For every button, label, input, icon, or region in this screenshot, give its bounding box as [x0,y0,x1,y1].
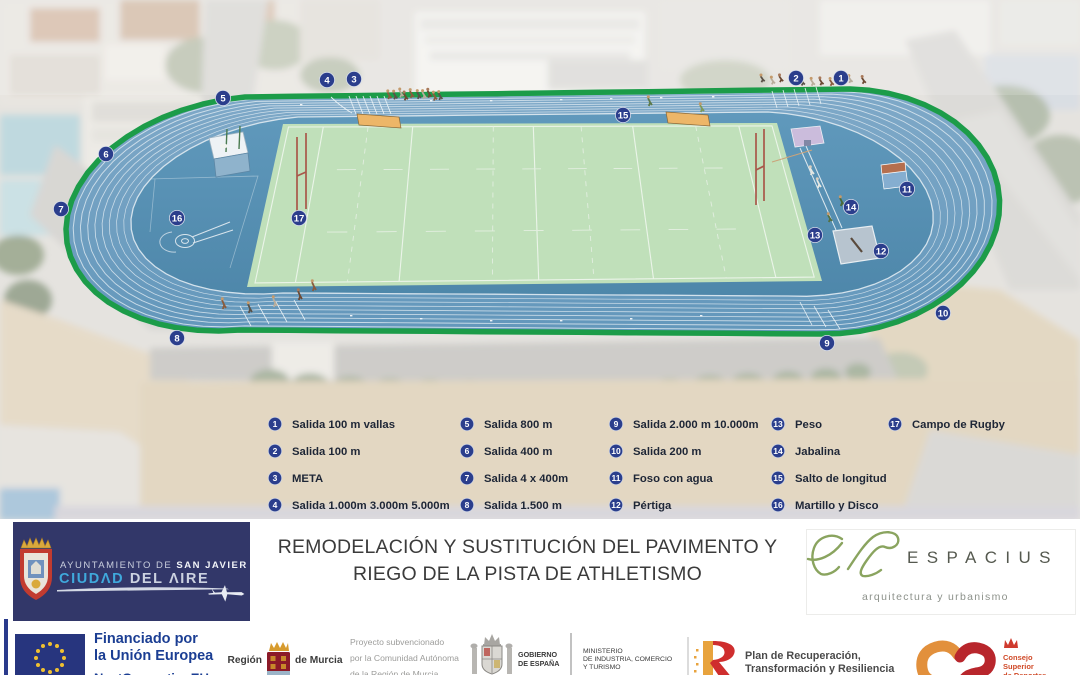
svg-text:Salida 4 x 400m: Salida 4 x 400m [484,473,568,485]
svg-text:Salida 200 m: Salida 200 m [633,446,701,458]
svg-text:NextGenerationEU: NextGenerationEU [94,671,209,675]
svg-text:la Unión Europea: la Unión Europea [94,648,214,664]
svg-text:1: 1 [838,73,844,84]
svg-text:MINISTERIO: MINISTERIO [583,648,623,655]
svg-text:8: 8 [465,500,470,510]
svg-text:Salida 1.500 m: Salida 1.500 m [484,500,562,512]
svg-text:1: 1 [273,419,278,429]
svg-text:de la Región de Murcia: de la Región de Murcia [350,669,439,675]
svg-text:Campo de Rugby: Campo de Rugby [912,419,1006,431]
svg-text:Salto de longitud: Salto de longitud [795,473,887,485]
svg-text:11: 11 [902,184,913,195]
svg-text:11: 11 [612,473,621,483]
svg-text:Y TURISMO: Y TURISMO [583,664,621,671]
svg-text:Financiado por: Financiado por [94,631,198,647]
svg-text:10: 10 [611,446,621,456]
svg-text:Salida 400 m: Salida 400 m [484,446,552,458]
svg-text:7: 7 [58,204,63,215]
svg-text:4: 4 [324,75,330,86]
svg-text:por la Comunidad Autónoma: por la Comunidad Autónoma [350,653,459,663]
svg-text:2: 2 [793,73,798,84]
svg-text:14: 14 [846,202,857,213]
svg-text:10: 10 [938,308,949,319]
svg-text:DE ESPAÑA: DE ESPAÑA [518,659,559,668]
svg-text:Pértiga: Pértiga [633,500,672,512]
svg-text:Superior: Superior [1003,662,1034,671]
svg-text:Salida 2.000 m 10.000m: Salida 2.000 m 10.000m [633,419,759,431]
svg-text:Foso con agua: Foso con agua [633,473,713,485]
svg-text:Jabalina: Jabalina [795,446,841,458]
svg-text:17: 17 [294,213,305,224]
svg-text:12: 12 [611,500,621,510]
svg-text:Región: Región [227,655,262,666]
svg-text:5: 5 [465,419,470,429]
svg-text:9: 9 [824,338,829,349]
svg-text:5: 5 [220,93,226,104]
svg-text:META: META [292,473,323,485]
svg-text:Martillo y Disco: Martillo y Disco [795,500,879,512]
svg-text:de Deportes: de Deportes [1003,671,1046,675]
svg-text:3: 3 [351,74,356,85]
svg-text:4: 4 [273,500,278,510]
svg-text:Salida 100 m: Salida 100 m [292,446,360,458]
svg-text:16: 16 [172,213,183,224]
svg-text:Transformación y Resiliencia: Transformación y Resiliencia [745,663,895,675]
svg-text:DE INDUSTRIA, COMERCIO: DE INDUSTRIA, COMERCIO [583,656,672,663]
svg-text:Salida 800 m: Salida 800 m [484,419,552,431]
svg-text:arquitectura y urbanismo: arquitectura y urbanismo [862,591,1009,603]
svg-text:13: 13 [773,419,783,429]
svg-text:CIUDΛD DEL ΛIRE: CIUDΛD DEL ΛIRE [59,571,209,587]
svg-text:15: 15 [773,473,783,483]
svg-text:6: 6 [465,446,470,456]
svg-text:2: 2 [273,446,278,456]
svg-text:Plan de Recuperación,: Plan de Recuperación, [745,650,861,662]
svg-text:Salida 100 m vallas: Salida 100 m vallas [292,419,395,431]
svg-text:14: 14 [773,446,783,456]
svg-text:Consejo: Consejo [1003,653,1033,662]
svg-text:6: 6 [103,149,108,160]
svg-text:7: 7 [465,473,470,483]
svg-text:Peso: Peso [795,419,822,431]
svg-text:de Murcia: de Murcia [295,655,343,666]
svg-text:Salida 1.000m 3.000m 5.000m: Salida 1.000m 3.000m 5.000m [292,500,450,512]
svg-text:9: 9 [614,419,619,429]
svg-text:GOBIERNO: GOBIERNO [518,650,558,659]
svg-text:ESPACIUS: ESPACIUS [907,548,1059,567]
svg-text:3: 3 [273,473,278,483]
svg-text:15: 15 [618,110,629,121]
svg-text:17: 17 [890,419,900,429]
svg-text:13: 13 [810,230,821,241]
svg-text:12: 12 [876,246,887,257]
svg-text:16: 16 [773,500,783,510]
svg-text:8: 8 [174,333,179,344]
svg-text:Proyecto subvencionado: Proyecto subvencionado [350,637,444,647]
svg-text:AYUNTAMIENTO DE SAN JAVIER: AYUNTAMIENTO DE SAN JAVIER [60,560,248,571]
